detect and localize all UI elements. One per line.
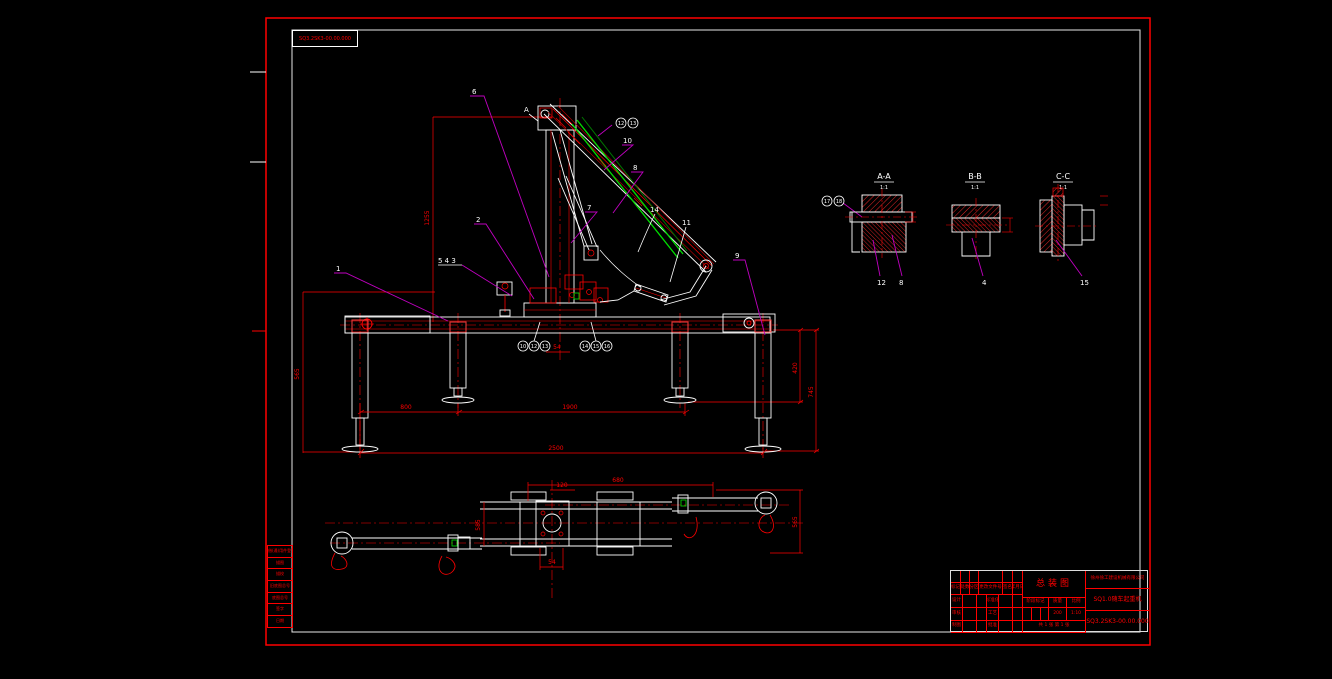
section-title: C-C xyxy=(1056,172,1070,181)
section-scale: 1:1 xyxy=(971,185,979,191)
tb-field: 批准 xyxy=(987,621,999,633)
balloon-label: 14 xyxy=(582,344,588,350)
sheet-frame xyxy=(250,18,1150,645)
dimension-label: 1900 xyxy=(562,404,577,411)
balloon-label: 10 xyxy=(520,344,526,350)
mass-value: 200 xyxy=(1049,608,1067,621)
crane-column xyxy=(524,106,608,317)
tb-field: 审核 xyxy=(951,608,963,621)
tb-field: 处数 xyxy=(961,583,970,595)
tb-field: 设计 xyxy=(951,595,963,608)
drawing-number: SQ3.2SK3-00.00.000 xyxy=(1086,611,1149,633)
section-view-cc: C-C 1:1 15 xyxy=(1035,172,1108,287)
tb-field: 工艺 xyxy=(987,608,999,621)
tb-field: 比例 xyxy=(1067,598,1086,608)
tb-field: 更改文件号 xyxy=(979,583,1003,595)
section-title: A-A xyxy=(877,172,891,181)
title-block: 标记 处数 分区 更改文件号 签名 年月日 设计 标准化 审核 工艺 制图 批准… xyxy=(950,570,1148,632)
tb-field: 分区 xyxy=(970,583,979,595)
section-scale: 1:1 xyxy=(880,185,888,191)
tb-field: 年月日 xyxy=(1013,583,1023,595)
dimension-label: 2500 xyxy=(548,445,563,452)
callout-label: 11 xyxy=(682,219,691,227)
dimension-label: 54 xyxy=(553,344,561,351)
control-handle xyxy=(497,282,512,316)
callout-label: 6 xyxy=(472,88,477,96)
outrigger-legs xyxy=(342,320,781,452)
tb-field: 签名 xyxy=(1003,583,1013,595)
margin-row: 签字 xyxy=(267,604,293,616)
callout-label: 8 xyxy=(633,164,637,172)
margin-row: 旧底图总号 xyxy=(267,581,293,593)
callout-label: 5 4 3 xyxy=(438,257,456,265)
corner-drawing-number-box: SQ3.2SK3-00.00.000 xyxy=(292,30,358,47)
callout-label: 8 xyxy=(899,279,903,287)
margin-row: 描图 xyxy=(267,558,293,570)
balloon-label: 13 xyxy=(542,344,548,350)
balloon-label: 18 xyxy=(836,199,842,205)
dimension-label: 585 xyxy=(475,519,482,531)
dimension-label: 420 xyxy=(792,362,799,374)
sheet-info: 共 1 张 第 1 张 xyxy=(1023,621,1086,633)
main-centerlines xyxy=(340,98,778,455)
dimension-label: 565 xyxy=(792,516,799,528)
margin-row: 描校 xyxy=(267,569,293,581)
callout-label: 12 xyxy=(877,279,886,287)
drawing-title: 总装图 xyxy=(1023,571,1086,598)
callout-label: 1 xyxy=(336,265,340,273)
dimension-label: 745 xyxy=(808,386,815,398)
callout-label: 4 xyxy=(982,279,987,287)
dimension-label: 800 xyxy=(400,404,412,411)
main-callouts: 1 2 5 4 3 6 10 8 7 14 11 9 12 13 10 12 1… xyxy=(334,88,862,351)
main-elevation-view: A xyxy=(303,98,819,458)
margin-row: 日期 xyxy=(267,616,293,628)
dimension-label: 120 xyxy=(556,482,568,489)
balloon-label: 13 xyxy=(630,121,636,127)
company-name: 徐州徐工建设机械有限公司 xyxy=(1086,571,1149,589)
callout-label: 15 xyxy=(1080,279,1089,287)
margin-row: 底图总号 xyxy=(267,593,293,605)
dimension-label: 565 xyxy=(294,368,301,380)
tb-field: 质量 xyxy=(1049,598,1067,608)
section-view-aa: A-A 1:1 17 18 12 8 xyxy=(822,172,918,287)
product-name: SQ1.0随车起重机 xyxy=(1086,589,1149,611)
tb-field: 标准化 xyxy=(987,595,999,608)
scale-value: 1:10 xyxy=(1067,608,1086,621)
balloon-label: 15 xyxy=(593,344,599,350)
luffing-cylinder xyxy=(552,130,598,260)
margin-table: 借(通)用件登记 描图 描校 旧底图总号 底图总号 签字 日期 xyxy=(267,545,293,628)
section-cut-marker: A xyxy=(524,106,538,121)
cad-drawing-canvas: A 1255 565 800 1900 2500 420 745 54 xyxy=(0,0,1332,679)
boom-tip-assembly xyxy=(600,250,712,305)
dimension-label: 680 xyxy=(612,477,624,484)
tb-field: 阶段标记 xyxy=(1023,598,1049,608)
margin-row: 借(通)用件登记 xyxy=(267,546,293,558)
section-view-bb: B-B 1:1 4 xyxy=(946,172,1013,287)
callout-label: 2 xyxy=(476,216,480,224)
tb-field: 制图 xyxy=(951,621,963,633)
section-title: B-B xyxy=(968,172,982,181)
balloon-label: 17 xyxy=(824,199,830,205)
dimension-label: 54 xyxy=(548,559,556,566)
callout-label: 7 xyxy=(587,204,591,212)
corner-drawing-number: SQ3.2SK3-00.00.000 xyxy=(299,36,351,42)
section-marker-label: A xyxy=(524,106,529,114)
plan-view: 680 120 585 565 54 xyxy=(325,477,805,600)
balloon-label: 16 xyxy=(604,344,610,350)
balloon-label: 12 xyxy=(531,344,537,350)
callout-label: 9 xyxy=(735,252,739,260)
balloon-label: 12 xyxy=(618,121,624,127)
main-extension-lines xyxy=(303,117,819,458)
callout-label: 14 xyxy=(650,206,659,214)
dimension-label: 1255 xyxy=(424,210,431,225)
callout-label: 10 xyxy=(623,137,632,145)
main-boom xyxy=(544,104,716,272)
tb-field: 标记 xyxy=(951,583,961,595)
